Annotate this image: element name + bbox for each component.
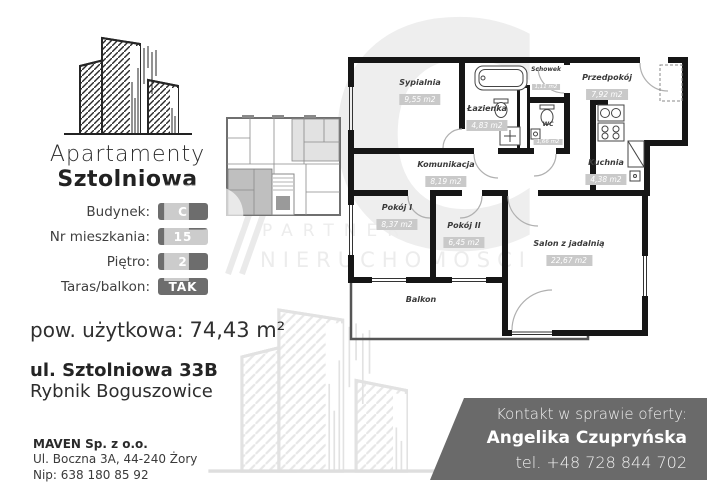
usable-area-label: pow. użytkowa: [30, 318, 183, 342]
flyer-page: C PARTNER NIERUCHOMOŚCI [0, 0, 707, 500]
company-logo [58, 22, 198, 142]
address-city: Rybnik Boguszowice [30, 381, 218, 402]
detail-label: Taras/balkon: [18, 279, 158, 295]
detail-label: Budynek: [18, 204, 158, 220]
room-label-wc: WC 1,66 m2 [534, 121, 563, 147]
contact-banner: Kontakt w sprawie oferty: Angelika Czupr… [430, 398, 707, 480]
room-label-komunikacja: Komunikacja 8,19 m2 [417, 160, 474, 188]
usable-area-value: 74,43 m² [189, 318, 285, 342]
company-address: Ul. Boczna 3A, 44-240 Żory [33, 452, 197, 467]
wardrobe-dashed [660, 65, 682, 101]
contact-heading: Kontakt w sprawie oferty: [496, 404, 687, 426]
toilet-tank-wc [540, 105, 554, 109]
room-label-kuchnia: Kuchnia 4,38 m2 [585, 158, 626, 186]
plan-door-arcs [408, 63, 668, 330]
detail-label: Nr mieszkania: [18, 229, 158, 245]
room-label-salon: Salon z jadalnią 22,67 m2 [533, 239, 604, 267]
room-label-pokoj-2: Pokój II 6,45 m2 [443, 221, 484, 249]
address-block: ul. Sztolniowa 33B Rybnik Boguszowice [30, 360, 218, 402]
watermark-overlay-letter: P [152, 170, 249, 302]
room-label-pokoj-1: Pokój I 8,37 m2 [376, 203, 417, 231]
company-nip: Nip: 638 180 85 92 [33, 468, 197, 483]
address-street: ul. Sztolniowa 33B [30, 360, 218, 381]
room-label-przedpokoj: Przedpokój 7,92 m2 [582, 73, 632, 101]
company-name: MAVEN Sp. z o.o. [33, 437, 197, 452]
detail-label: Piętro: [18, 254, 158, 270]
floor-plan [342, 45, 702, 345]
contact-phone: tel. +48 728 844 702 [516, 451, 687, 474]
room-label-schowek: Schowek 1,11 m2 [531, 66, 561, 92]
usable-area: pow. użytkowa:74,43 m² [30, 318, 285, 342]
room-label-lazienka: Łazienka 4,83 m2 [466, 104, 507, 132]
contact-agent-name: Angelika Czupryńska [487, 426, 687, 451]
room-label-sypialnia: Sypialnia 9,55 m2 [399, 78, 440, 106]
kitchen-stove [598, 123, 624, 141]
room-label-balkon: Balkon [406, 295, 436, 304]
company-block: MAVEN Sp. z o.o. Ul. Boczna 3A, 44-240 Ż… [33, 437, 197, 483]
